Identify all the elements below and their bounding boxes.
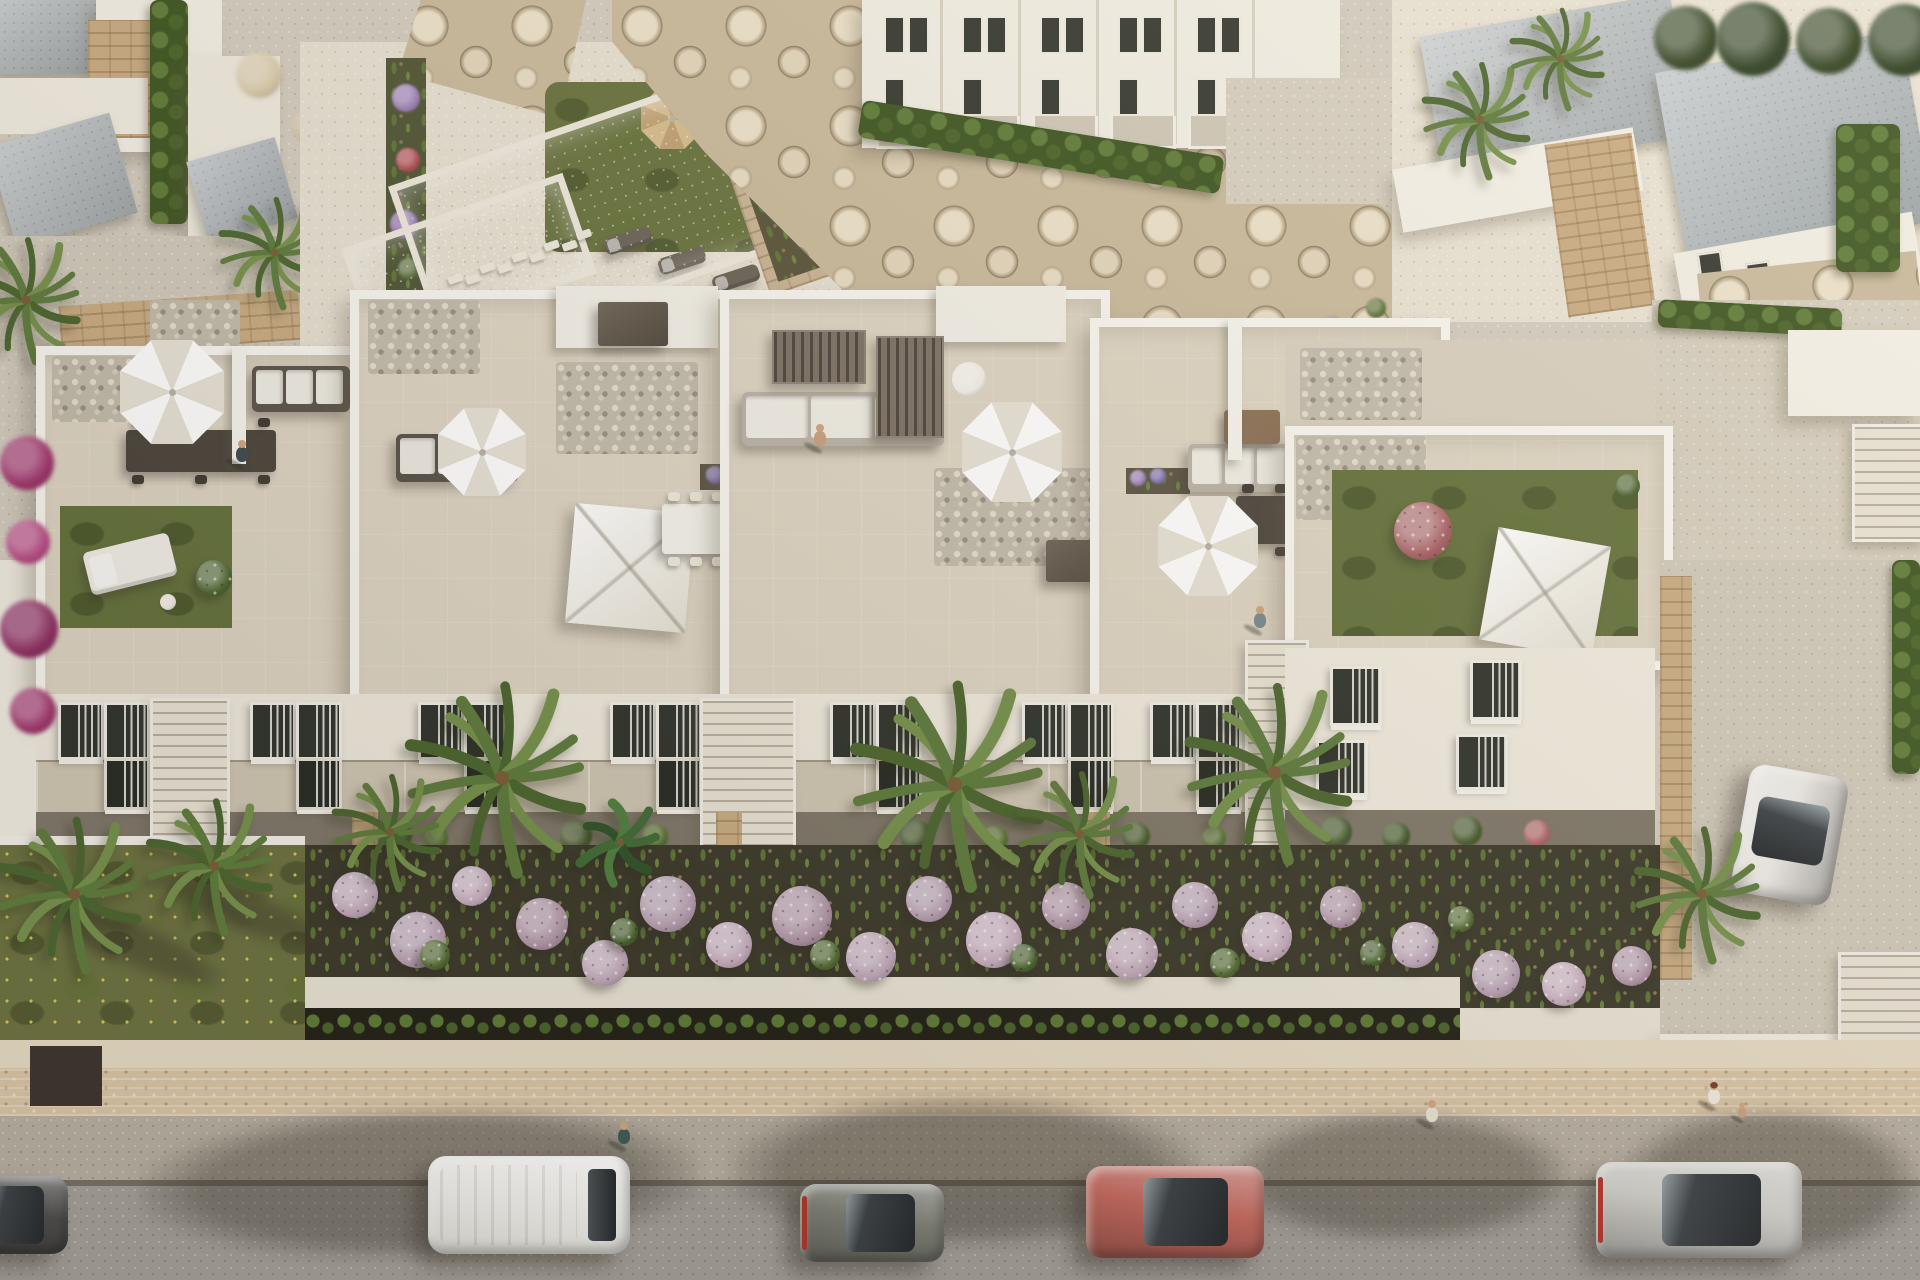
bougainvillea [6,520,50,564]
stepping-stone [529,251,546,263]
flowers [396,148,420,172]
window [610,702,656,760]
perimeter-wall-top [0,1040,1920,1068]
lavender-bush [582,940,628,986]
flowers [1150,468,1166,484]
chair [1242,484,1254,493]
shrub [610,918,638,946]
car-roof-glass [1143,1178,1228,1246]
flowers [392,84,420,112]
chair [690,492,702,501]
delivery-van [428,1156,630,1254]
parked-car-dark [0,1176,68,1254]
sofa-cushion [1257,448,1287,484]
palm-tree-icon [1182,680,1367,865]
flowering-shrub [1524,820,1550,846]
lavender-bush [1106,928,1158,980]
palm-tree [1508,6,1613,111]
car-roof-glass [846,1194,915,1252]
window-slot [1196,78,1217,116]
pedestrian [1424,1100,1440,1130]
flowering-bush [1394,502,1452,560]
sofa-cushion [1192,448,1222,484]
window-slot [986,16,1007,54]
stepping-stone [465,273,482,285]
window [1470,660,1522,720]
shrub [420,940,450,970]
villa-roof [0,0,100,74]
path [1226,78,1412,204]
parked-car-gray [800,1184,944,1262]
bougainvillea [0,436,54,490]
pergola-slats [876,336,944,438]
outdoor-sofa [252,366,350,412]
parked-car-silver [1596,1162,1802,1258]
pedestrian [1706,1082,1722,1112]
shrub [1452,816,1482,846]
taillight [802,1196,807,1249]
palmetto [1632,824,1772,964]
chair [258,475,270,484]
boxwood-hedge [305,1008,1470,1042]
pebble-patch [368,300,480,374]
terrace-wall [1228,318,1242,460]
resident [1252,606,1268,636]
window-slot [1064,16,1085,54]
shrub [196,560,232,596]
parasol [962,402,1062,502]
sofa-cushion [286,370,313,404]
window [656,702,702,760]
banana-palm-icon [570,792,670,892]
window [58,702,104,760]
lavender-bush [1472,950,1520,998]
window [250,702,296,760]
car-roof-glass [0,1186,44,1244]
resident [234,440,250,470]
window [104,702,150,760]
round-table [952,362,986,396]
palm-tree [330,772,450,892]
person-torso [236,447,248,462]
staircase [700,698,796,852]
stepping-stone [497,262,514,274]
palm-tree [1182,680,1367,865]
person-torso [814,431,826,446]
person-head [620,1122,628,1130]
hedge [1892,560,1920,774]
person-head [238,440,246,448]
window-slot [884,16,905,54]
chair [258,418,270,427]
palm-tree-icon [1508,6,1613,111]
pampas-grass [236,52,282,98]
person-torso [618,1129,630,1144]
window-slot [1142,16,1163,54]
window-slot [962,78,983,116]
pergola-slats [772,330,866,384]
window-slot [1118,16,1139,54]
chair [668,557,680,566]
resident [812,424,828,454]
shrub [1210,948,1240,978]
lavender-bush [846,932,896,982]
person-torso [1738,1107,1746,1118]
gravel-patch [556,362,698,454]
shrub [1360,940,1386,966]
lavender-bush [1242,912,1292,962]
chair [668,492,680,501]
lavender-bush [1392,922,1438,968]
flowers [1130,470,1146,486]
tree-shadow [1230,1112,1570,1242]
window [296,702,342,760]
lavender-bush [516,898,568,950]
side-table [160,594,176,610]
parked-car-red [1086,1166,1264,1258]
pedestrian-child [1736,1103,1747,1124]
palm-tree [1015,769,1145,899]
lavender-bush [1542,962,1586,1006]
sofa-cushion [256,370,283,404]
window-slot [1196,16,1217,54]
white-wall [1788,330,1920,416]
chair [690,557,702,566]
garden-path [305,977,1470,1009]
dark-tree [1654,6,1718,70]
garden-path [1460,1008,1660,1042]
palm-tree-icon [0,814,154,974]
lavender-bush [706,922,752,968]
person-head [1739,1103,1745,1109]
palm-tree [144,796,284,936]
lavender-bush [772,886,832,946]
chair [195,475,207,484]
palm-tree [0,814,154,974]
person-head [1428,1100,1436,1108]
dark-tree [1796,8,1862,74]
window-slot [908,16,929,54]
person-head [1256,606,1264,614]
parasol [438,408,526,496]
hedge [1836,124,1900,272]
shrub [1366,298,1386,318]
person-head [1710,1082,1718,1090]
lavender-bush [1172,882,1218,928]
lavender-bush [1320,886,1362,928]
sofa-cushion [316,370,343,404]
window-slot [1118,78,1139,116]
pedestrian [616,1122,632,1152]
storage-box [598,302,668,346]
palm-tree-icon [144,796,284,936]
stone-pillar [716,812,742,848]
bougainvillea [10,688,56,734]
person-torso [1708,1089,1720,1104]
sofa-cushion [746,396,808,438]
gate-door [30,1046,102,1106]
side-steps [1852,424,1920,542]
shade-sail [1479,527,1611,659]
window [1068,702,1114,760]
person-torso [1426,1107,1438,1122]
parasol [1158,496,1258,596]
bougainvillea [0,600,58,658]
palm-tree-icon [330,772,450,892]
pebble-patch [1300,348,1422,420]
car-roof-glass [1662,1174,1761,1245]
sofa-cushion [400,438,435,474]
palm-tree-icon [1015,769,1145,899]
shrub [810,940,840,970]
banana-palm [570,792,670,892]
shrub [1010,944,1038,972]
dark-tree [1716,2,1790,76]
parasol [120,340,224,444]
window [1456,734,1508,790]
person-head [816,424,824,432]
window-slot [1040,78,1061,116]
shrub [1448,906,1474,932]
hedge [150,0,188,224]
van-windshield [588,1169,616,1242]
window-slot [962,16,983,54]
person-torso [1254,613,1266,628]
window-slot [1220,16,1241,54]
stair-bulkhead [936,286,1066,342]
van-roof-ribs [440,1165,577,1245]
stepping-stone [561,239,578,251]
taillight [1598,1177,1603,1242]
window-slot [1040,16,1061,54]
palm-tree-icon [1632,824,1772,964]
potted-plant [1616,474,1640,498]
aerial-architectural-render [0,0,1920,1280]
chair [132,475,144,484]
